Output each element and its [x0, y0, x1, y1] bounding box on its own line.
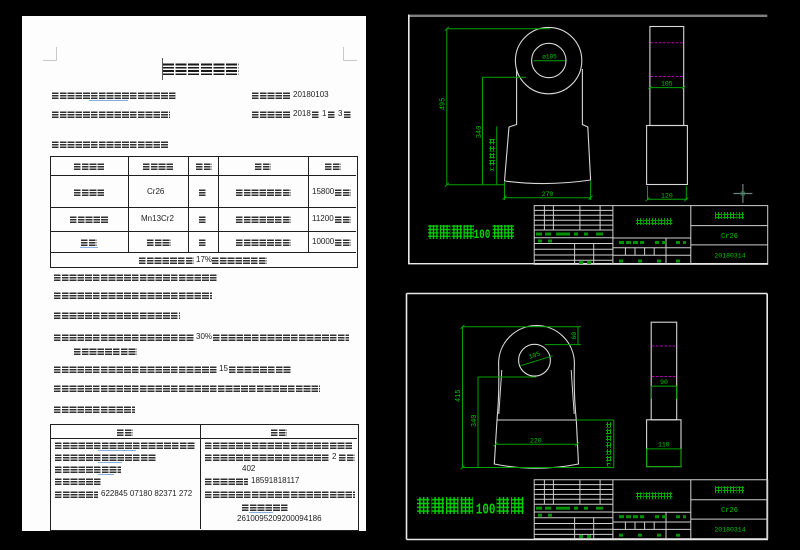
svg-text:270: 270: [542, 191, 554, 198]
svg-text:Cr26: Cr26: [721, 233, 738, 241]
svg-text:220: 220: [530, 437, 542, 444]
svg-text:Cr26: Cr26: [721, 507, 738, 515]
svg-text:60: 60: [571, 332, 578, 340]
svg-text:100: 100: [476, 501, 496, 518]
svg-text:105: 105: [528, 350, 541, 360]
svg-text:90: 90: [660, 379, 668, 386]
svg-text:120: 120: [661, 193, 673, 200]
svg-text:ø105: ø105: [542, 54, 557, 61]
svg-text:20180314: 20180314: [714, 527, 745, 534]
svg-text:105: 105: [661, 81, 673, 88]
svg-text:340: 340: [471, 414, 479, 427]
svg-text:20180314: 20180314: [714, 252, 745, 259]
svg-text:100: 100: [474, 229, 491, 243]
svg-text:495: 495: [440, 98, 448, 111]
svg-text:110: 110: [658, 442, 670, 449]
svg-text:415: 415: [455, 389, 463, 402]
svg-text:340: 340: [476, 126, 484, 139]
